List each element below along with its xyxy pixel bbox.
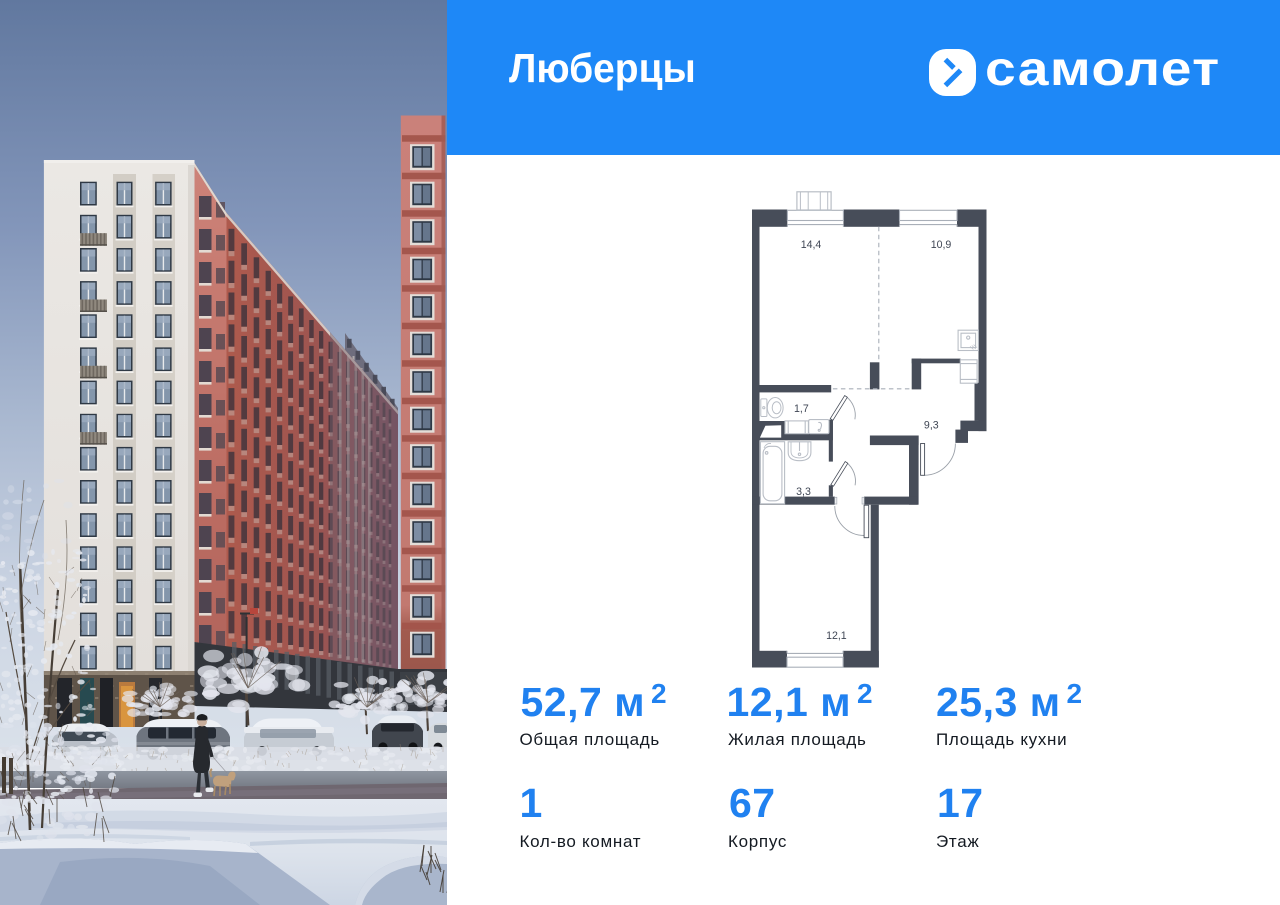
svg-text:1,7: 1,7 — [794, 403, 809, 415]
svg-text:3,3: 3,3 — [796, 486, 811, 498]
svg-text:14,4: 14,4 — [801, 239, 822, 251]
svg-text:10,9: 10,9 — [931, 239, 952, 251]
svg-text:9,3: 9,3 — [924, 419, 939, 431]
svg-text:12,1: 12,1 — [826, 630, 847, 642]
